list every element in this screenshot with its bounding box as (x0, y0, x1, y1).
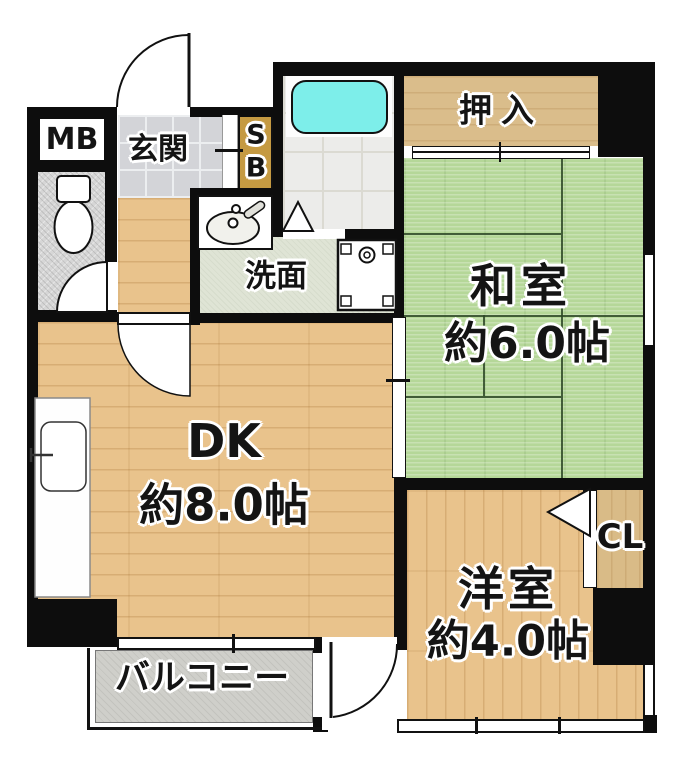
yoshitsu-size-label: 約4.0帖 (427, 621, 589, 664)
entrance-door-icon (117, 33, 189, 107)
wall-bath-right (394, 62, 404, 317)
wall-dk-yoshitsu (394, 478, 407, 650)
wall-washitsu-yoshitsu (394, 478, 655, 490)
oshiire-sliding-door-tick (499, 142, 501, 162)
balcony-rail-left (87, 648, 90, 730)
tatami-line (404, 315, 643, 317)
wall-left (27, 107, 38, 647)
washitsu-sliding-door-tick (386, 379, 410, 382)
oshiire-label: 押入 (459, 94, 543, 127)
oshiire-sliding-door-rail (413, 151, 589, 153)
mb-label: MB (46, 125, 99, 155)
wall-toilet-right (105, 172, 117, 262)
washroom-label: 洗面 (245, 262, 307, 293)
window-mullion (558, 717, 561, 734)
cl-door-strip (583, 490, 597, 588)
wall-cl-block (593, 588, 643, 665)
washitsu-window (643, 255, 655, 345)
balcony-rail-bottom (87, 727, 397, 730)
wall-washroom-bottom (190, 313, 404, 323)
shoe-box-label-s: S (246, 122, 265, 149)
oshiire-sliding-door (412, 146, 590, 159)
wall-hall-right (190, 188, 200, 325)
wall-right (643, 345, 655, 665)
window-mullion (475, 717, 478, 734)
tatami-line (404, 233, 561, 235)
genkan-label: 玄関 (128, 135, 188, 165)
shoe-box-label-b: B (246, 155, 267, 182)
cl-label: CL (597, 520, 644, 554)
yoshitsu-door-icon (322, 637, 397, 730)
wall-right-corner (643, 715, 657, 733)
wall-bath-left (273, 67, 283, 237)
wall-top-right-block (598, 62, 655, 157)
wall-bath-bottom (345, 229, 394, 239)
hallway-floor (118, 198, 190, 313)
washitsu-size-label: 約6.0帖 (444, 322, 610, 366)
toilet-floor (38, 172, 105, 310)
dk-label: DK (187, 418, 261, 464)
yoshitsu-label: 洋室 (458, 566, 558, 612)
bathroom-floor (283, 75, 394, 231)
wall-washroom-top (200, 188, 283, 198)
wall-toilet-bottom (27, 310, 117, 322)
washitsu-label: 和室 (470, 263, 572, 309)
balcony-label: バルコニー (115, 662, 289, 697)
shoe-box-door-tick (215, 149, 243, 152)
wall-dk-corner-block (27, 599, 117, 647)
yoshitsu-side-window (643, 665, 655, 715)
washitsu-sliding-door (392, 317, 406, 478)
dk-size-label: 約8.0帖 (139, 483, 309, 528)
yoshitsu-bottom-window (397, 719, 645, 733)
tatami-line (404, 396, 561, 398)
dk-window-mullion (232, 634, 235, 653)
bath-threshold (283, 229, 345, 239)
floor-plan: MB 玄関 S B 押入 和室 約6.0帖 洗面 DK 約8.0帖 洋室 約4.… (0, 0, 684, 769)
wall-right (643, 157, 655, 255)
dk-window (117, 637, 316, 650)
